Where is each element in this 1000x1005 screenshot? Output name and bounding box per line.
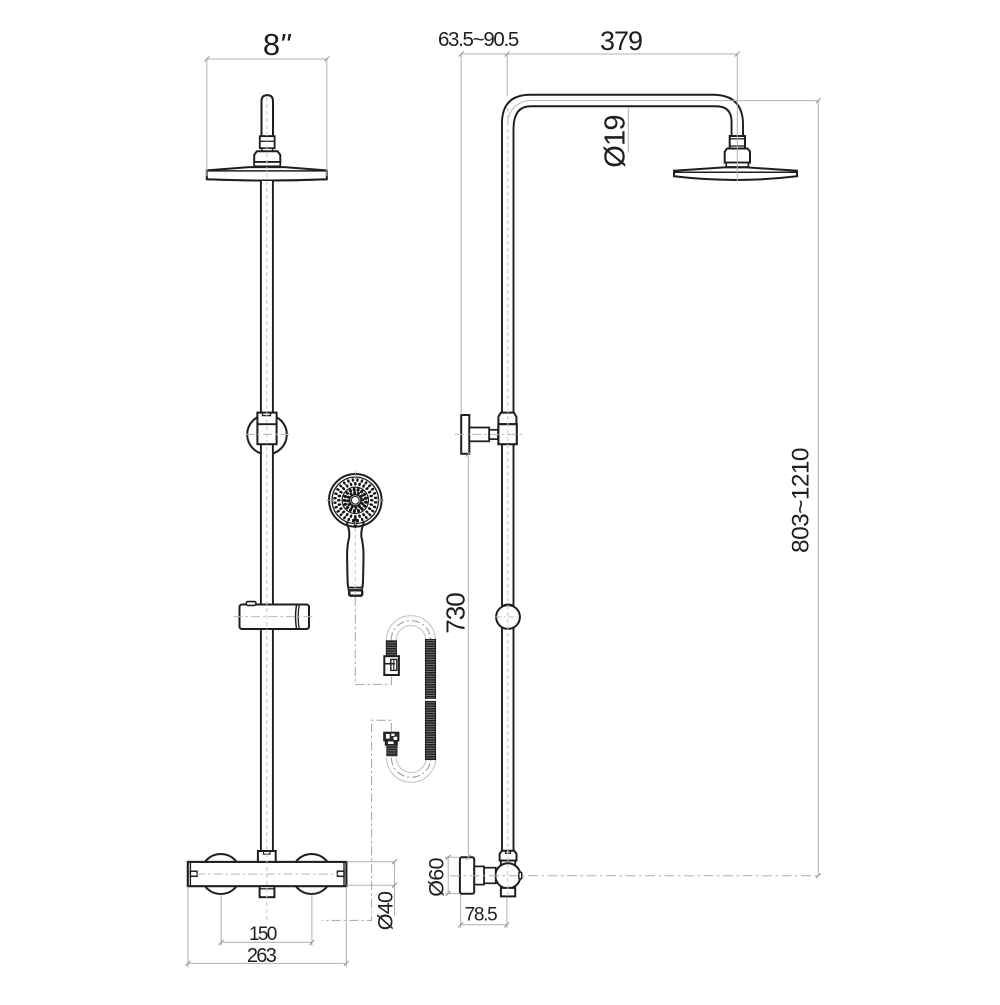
svg-text:379: 379	[600, 26, 642, 56]
svg-text:803~1210: 803~1210	[788, 448, 815, 553]
svg-text:Ø19: Ø19	[600, 115, 632, 167]
svg-text:Ø60: Ø60	[425, 857, 449, 896]
svg-text:8": 8"	[263, 27, 292, 62]
svg-text:78.5: 78.5	[465, 905, 498, 926]
svg-text:63.5~90.5: 63.5~90.5	[438, 28, 519, 51]
svg-text:263: 263	[247, 945, 277, 967]
svg-text:Ø40: Ø40	[374, 891, 398, 930]
svg-text:730: 730	[441, 593, 471, 634]
svg-text:150: 150	[249, 924, 277, 945]
